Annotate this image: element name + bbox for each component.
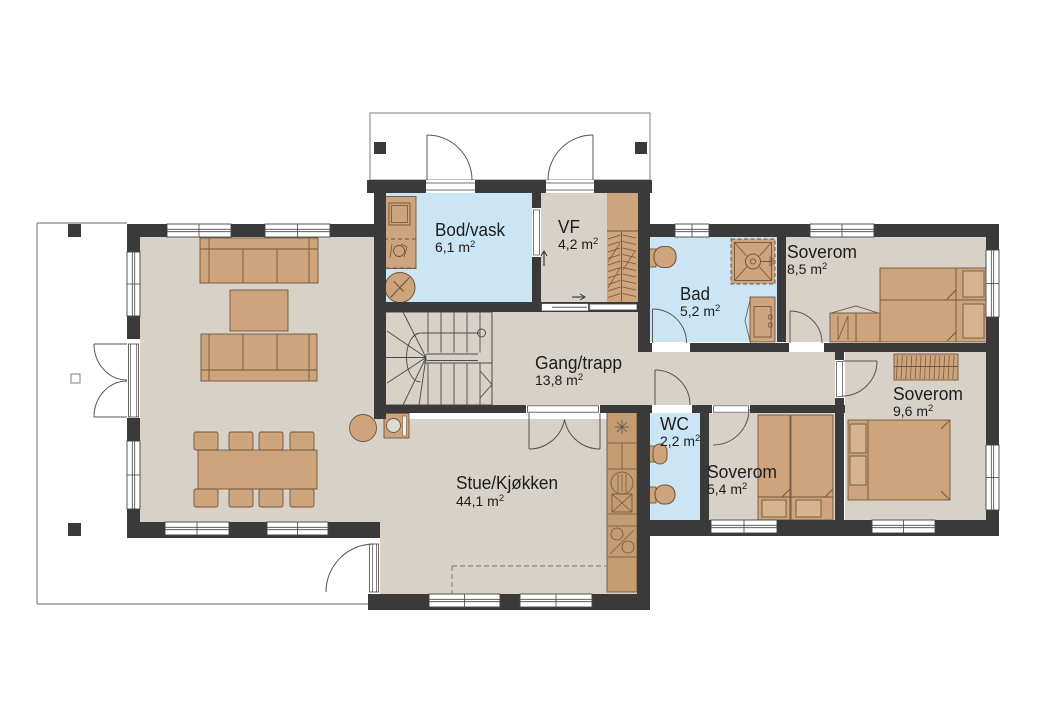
svg-text:6,1 m2: 6,1 m2 (435, 239, 475, 255)
svg-text:Bad: Bad (680, 284, 710, 304)
svg-text:Soverom: Soverom (707, 462, 777, 482)
svg-text:8,5 m2: 8,5 m2 (787, 261, 827, 277)
svg-text:Soverom: Soverom (893, 384, 963, 404)
svg-text:5,2 m2: 5,2 m2 (680, 303, 720, 319)
svg-text:4,2 m2: 4,2 m2 (558, 236, 598, 252)
svg-text:Soverom: Soverom (787, 242, 857, 262)
svg-text:9,6 m2: 9,6 m2 (893, 403, 933, 419)
svg-text:13,8 m2: 13,8 m2 (535, 372, 583, 388)
svg-text:5,4 m2: 5,4 m2 (707, 481, 747, 497)
svg-text:Stue/Kjøkken: Stue/Kjøkken (456, 473, 558, 493)
svg-text:Bod/vask: Bod/vask (435, 220, 506, 240)
svg-text:Gang/trapp: Gang/trapp (535, 353, 622, 373)
svg-text:VF: VF (558, 217, 580, 237)
svg-text:2,2 m2: 2,2 m2 (660, 433, 700, 449)
svg-text:WC: WC (660, 414, 689, 434)
svg-text:44,1 m2: 44,1 m2 (456, 493, 504, 509)
